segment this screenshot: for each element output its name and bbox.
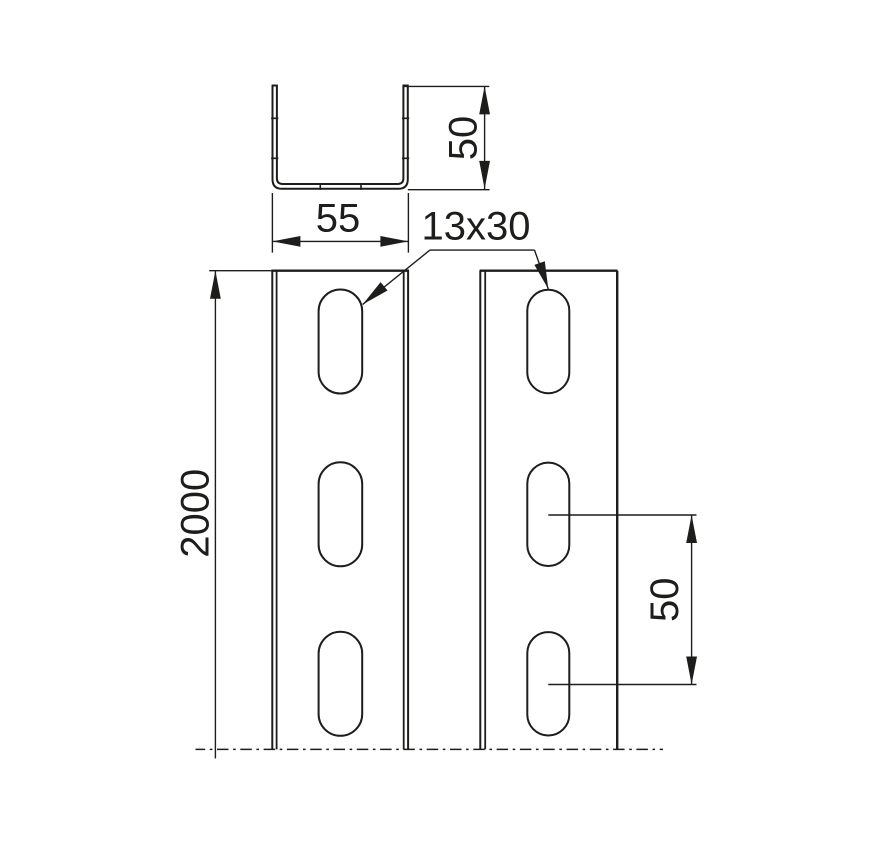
svg-text:55: 55 [316, 197, 361, 241]
svg-text:50: 50 [442, 116, 486, 161]
svg-text:13x30: 13x30 [422, 205, 531, 249]
svg-text:50: 50 [643, 577, 687, 622]
svg-text:2000: 2000 [174, 469, 218, 558]
